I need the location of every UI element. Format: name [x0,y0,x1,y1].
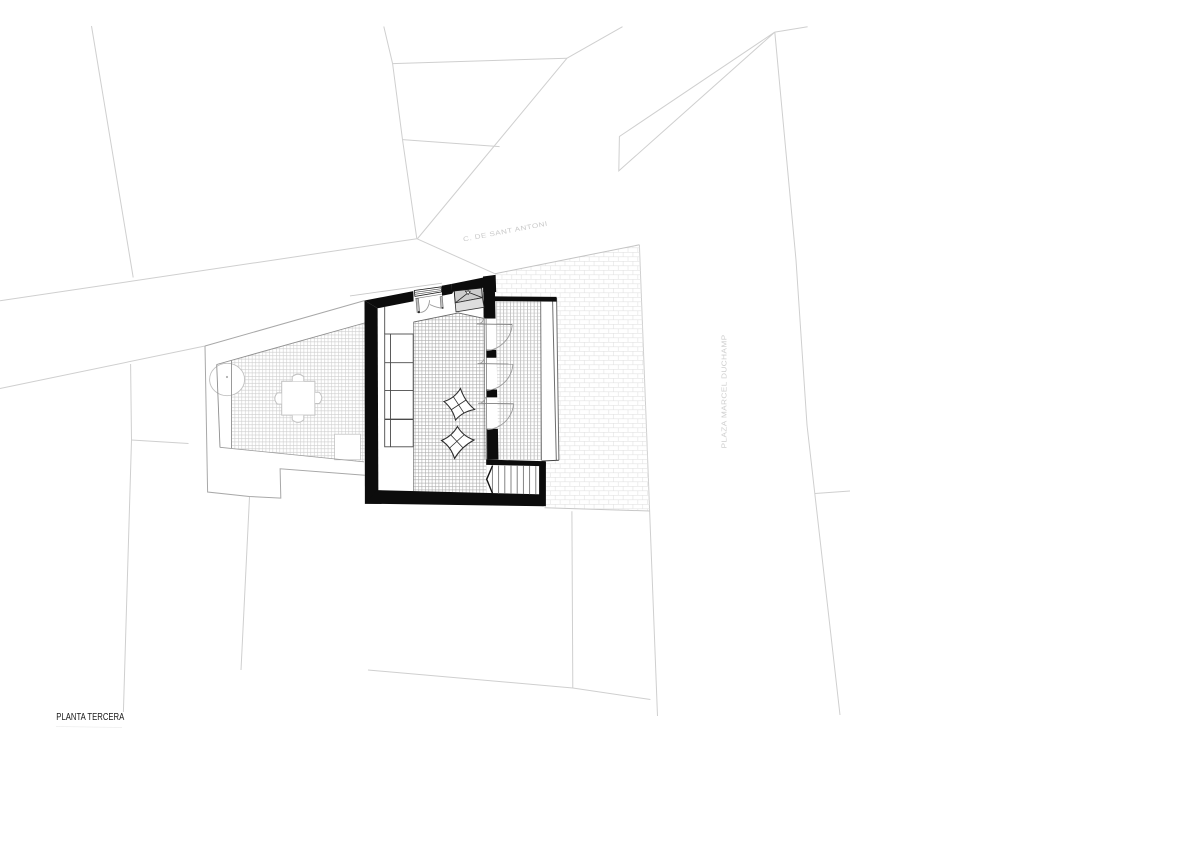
svg-text:PLAZA MARCEL DUCHAMP: PLAZA MARCEL DUCHAMP [720,335,729,449]
svg-text:PLANTA TERCERA: PLANTA TERCERA [56,711,124,723]
